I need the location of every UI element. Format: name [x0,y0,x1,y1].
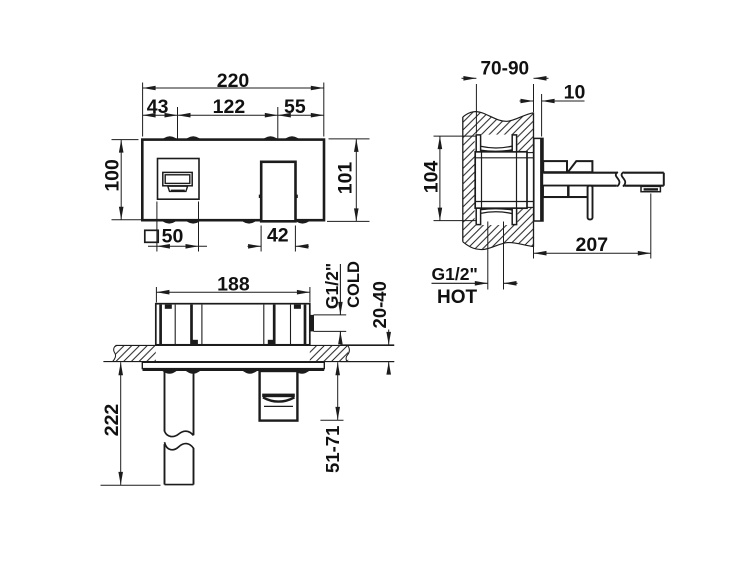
svg-text:42: 42 [267,224,289,246]
svg-text:207: 207 [576,234,609,256]
svg-text:G1/2": G1/2" [432,264,478,284]
svg-text:220: 220 [217,70,250,92]
svg-text:122: 122 [213,96,246,118]
svg-text:55: 55 [284,96,306,118]
svg-text:10: 10 [564,81,586,103]
svg-text:101: 101 [335,162,357,195]
svg-text:188: 188 [217,274,250,296]
svg-text:104: 104 [421,161,443,194]
svg-text:222: 222 [101,404,123,437]
svg-text:20-40: 20-40 [369,281,390,328]
svg-text:COLD: COLD [345,261,363,308]
svg-text:51-71: 51-71 [322,426,343,473]
svg-text:50: 50 [162,225,184,247]
svg-text:70-90: 70-90 [480,58,529,79]
svg-text:G1/2": G1/2" [322,263,342,309]
svg-text:HOT: HOT [437,287,478,308]
svg-text:43: 43 [147,96,169,118]
svg-text:100: 100 [102,159,124,192]
